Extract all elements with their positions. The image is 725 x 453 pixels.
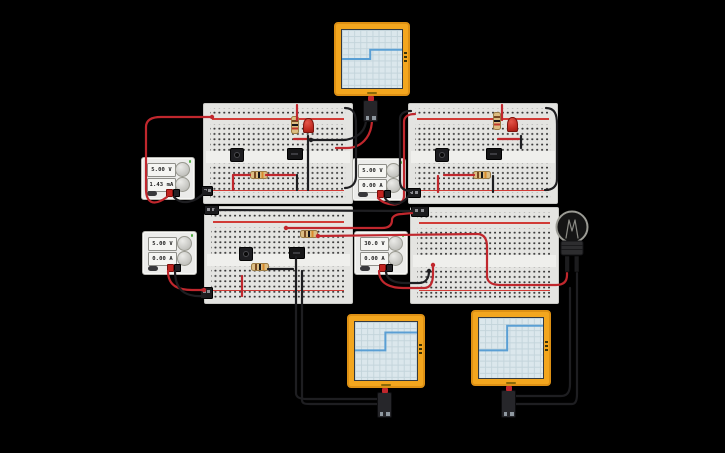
power-supply-2[interactable]: 5.00 V 0.00 A: [352, 158, 406, 201]
psu-terminal-positive[interactable]: [167, 264, 174, 272]
breadboard-bank-top: [211, 227, 346, 254]
bulb-terminal-pin[interactable]: [575, 256, 580, 272]
breadboard-bank-top: [417, 228, 552, 255]
scope-time-label: [367, 92, 377, 94]
psu-terminal-positive[interactable]: [166, 189, 173, 197]
psu-power-led: [191, 234, 194, 237]
breadboard-rail-line-positive: [212, 190, 344, 192]
pushbutton[interactable]: [230, 148, 244, 162]
pushbutton[interactable]: [435, 148, 449, 162]
probe-pin[interactable]: [372, 116, 376, 120]
breadboard-center-channel: [207, 254, 350, 266]
probe-pin[interactable]: [504, 412, 508, 416]
scope-settings-marks: [404, 52, 407, 64]
breadboard-rail-top: [415, 108, 551, 115]
breadboard-rail-line-positive: [213, 221, 344, 223]
led-red[interactable]: [507, 117, 518, 132]
terminal-connector[interactable]: [201, 186, 213, 196]
psu-terminal-negative[interactable]: [386, 264, 393, 272]
breadboard-rail-top: [211, 211, 346, 218]
resistor-horizontal[interactable]: [250, 171, 268, 179]
breadboard-rail-bottom: [415, 192, 551, 199]
breadboard-rail-line-positive: [417, 118, 549, 120]
resistor-vertical[interactable]: [493, 112, 501, 130]
scope-probe-bottom-left[interactable]: [377, 392, 392, 418]
scope-trace: [342, 30, 402, 88]
bulb-filament: [566, 220, 578, 238]
probe-pin[interactable]: [380, 412, 384, 416]
scope-screen: [478, 317, 544, 379]
scope-screen: [341, 29, 403, 89]
breadboard-rail-bottom: [211, 292, 346, 299]
oscilloscope-top[interactable]: [334, 22, 410, 96]
mosfet-transistor[interactable]: [289, 247, 305, 259]
psu-power-led: [189, 160, 192, 163]
psu-power-led: [402, 234, 405, 237]
probe-pin[interactable]: [386, 412, 390, 416]
scope-screen: [354, 321, 418, 381]
terminal-connector[interactable]: [407, 188, 421, 198]
psu-voltage-display: 5.00 V: [148, 237, 177, 251]
psu-terminal-negative[interactable]: [174, 264, 181, 272]
probe-tip: [506, 386, 512, 391]
breadboard-rail-line-positive: [419, 222, 550, 224]
resistor-horizontal[interactable]: [473, 171, 491, 179]
breadboard-rail-bottom: [417, 292, 552, 299]
breadboard-rail-line-positive: [419, 290, 550, 292]
psu-voltage-display: 30.0 V: [360, 237, 389, 251]
psu-voltage-knob[interactable]: [388, 236, 403, 251]
scope-probe-top[interactable]: [363, 100, 378, 122]
resistor-horizontal[interactable]: [300, 230, 318, 238]
probe-pin[interactable]: [510, 412, 514, 416]
psu-voltage-display: 5.00 V: [147, 163, 176, 177]
psu-terminal-positive[interactable]: [379, 264, 386, 272]
psu-voltage-knob[interactable]: [177, 236, 192, 251]
breadboard-rail-line-positive: [212, 118, 344, 120]
breadboard-center-channel: [206, 151, 350, 163]
pushbutton[interactable]: [239, 247, 253, 261]
psu-power-button[interactable]: [147, 191, 157, 196]
bulb-terminal-pin[interactable]: [565, 256, 570, 272]
breadboard-center-channel: [413, 255, 556, 267]
psu-power-button[interactable]: [360, 266, 370, 271]
terminal-connector[interactable]: [204, 205, 219, 215]
psu-voltage-knob[interactable]: [175, 162, 190, 177]
mosfet-transistor[interactable]: [287, 148, 303, 160]
psu-power-button[interactable]: [358, 192, 368, 197]
resistor-horizontal[interactable]: [251, 263, 269, 271]
scope-settings-marks: [419, 344, 422, 356]
scope-time-label: [381, 384, 391, 386]
breadboard-bank-top: [210, 124, 346, 151]
psu-terminal-negative[interactable]: [173, 189, 180, 197]
scope-time-label: [506, 382, 516, 384]
breadboard-2[interactable]: [408, 103, 558, 204]
circuit-canvas: 5.00 V 1.43 mA 5.00 V 0.00 A 5.00 V 0.00…: [0, 0, 725, 453]
psu-voltage-knob[interactable]: [386, 163, 401, 178]
bulb-glass[interactable]: [557, 212, 588, 243]
psu-voltage-display: 5.00 V: [358, 164, 387, 178]
probe-tip: [382, 388, 388, 393]
breadboard-rail-line-positive: [213, 290, 344, 292]
scope-probe-bottom-right[interactable]: [501, 390, 516, 418]
mosfet-transistor[interactable]: [486, 148, 502, 160]
resistor-vertical[interactable]: [291, 116, 299, 134]
probe-tip: [368, 96, 374, 101]
breadboard-rail-bottom: [210, 192, 346, 199]
scope-trace: [355, 322, 417, 380]
power-supply-1[interactable]: 5.00 V 1.43 mA: [141, 157, 195, 200]
breadboard-3[interactable]: [204, 206, 353, 304]
light-bulb[interactable]: [557, 212, 588, 273]
oscilloscope-bottom-right[interactable]: [471, 310, 551, 386]
scope-trace: [479, 318, 543, 378]
breadboard-4[interactable]: [410, 207, 559, 304]
oscilloscope-bottom-left[interactable]: [347, 314, 425, 388]
breadboard-center-channel: [411, 151, 555, 163]
terminal-connector[interactable]: [200, 287, 213, 299]
breadboard-rail-top: [210, 108, 346, 115]
psu-terminal-negative[interactable]: [384, 190, 391, 198]
terminal-connector[interactable]: [411, 206, 429, 217]
power-supply-4[interactable]: 30.0 V 0.00 A: [354, 231, 408, 275]
psu-power-button[interactable]: [148, 266, 158, 271]
breadboard-bank-top: [415, 124, 551, 151]
breadboard-bank-bottom: [210, 163, 346, 190]
scope-settings-marks: [545, 341, 548, 353]
breadboard-rail-line-positive: [417, 190, 549, 192]
probe-pin[interactable]: [366, 116, 370, 120]
power-supply-3[interactable]: 5.00 V 0.00 A: [142, 231, 197, 275]
led-red[interactable]: [303, 118, 314, 133]
breadboard-rail-top: [417, 212, 552, 219]
bulb-base[interactable]: [561, 241, 583, 255]
breadboard-1[interactable]: [203, 103, 353, 204]
psu-terminal-positive[interactable]: [377, 190, 384, 198]
psu-power-led: [400, 161, 403, 164]
